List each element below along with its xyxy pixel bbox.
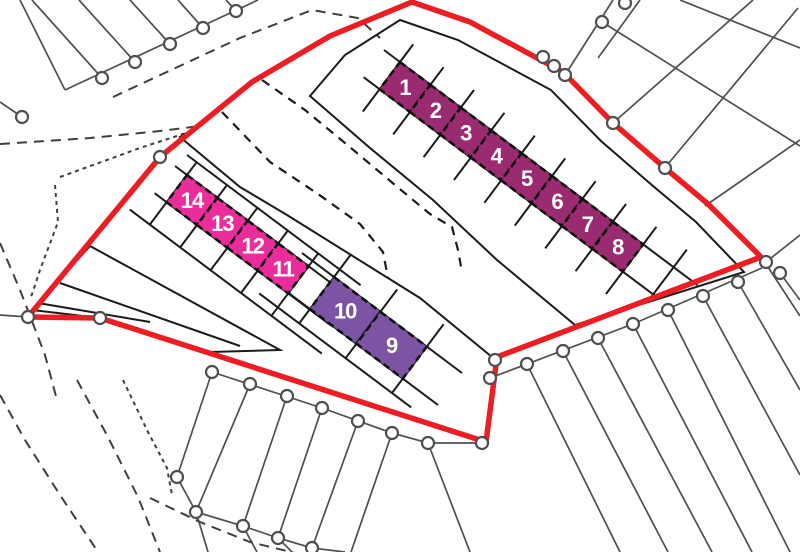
survey-node (272, 532, 284, 544)
survey-node (230, 5, 242, 17)
survey-node (489, 354, 501, 366)
plot-number: 4 (491, 143, 504, 168)
survey-node (662, 304, 674, 316)
plot-number: 12 (242, 234, 265, 259)
plot-number: 5 (521, 166, 533, 191)
plot-number: 3 (460, 121, 472, 146)
survey-node (244, 378, 256, 390)
survey-node (197, 22, 209, 34)
survey-node (659, 162, 671, 174)
survey-node (592, 332, 604, 344)
survey-node (697, 290, 709, 302)
survey-node (281, 390, 293, 402)
plots-1-8-strip: 1 2 3 4 5 6 7 8 (380, 62, 644, 272)
plot-number: 9 (386, 333, 398, 358)
survey-node (422, 437, 434, 449)
survey-node (306, 542, 318, 552)
survey-node (237, 520, 249, 532)
survey-node (386, 427, 398, 439)
road-area (180, 2, 761, 357)
survey-node (190, 506, 202, 518)
survey-node (596, 16, 608, 28)
survey-node (96, 72, 108, 84)
survey-node (559, 69, 571, 81)
survey-node (352, 415, 364, 427)
plot-number: 6 (551, 189, 563, 214)
plot-number: 13 (211, 211, 234, 236)
survey-node (316, 402, 328, 414)
survey-node (607, 117, 619, 129)
site-plan-map: 1 2 3 4 5 6 7 8 14 13 12 11 10 9 (0, 0, 800, 552)
plot-number: 2 (430, 98, 442, 123)
survey-node (22, 311, 34, 323)
survey-node (548, 60, 560, 72)
survey-node (129, 56, 141, 68)
survey-node (619, 0, 631, 9)
survey-node (521, 358, 533, 370)
survey-node (154, 151, 166, 163)
survey-node (627, 318, 639, 330)
plot-number: 1 (399, 75, 411, 100)
map-canvas: 1 2 3 4 5 6 7 8 14 13 12 11 10 9 (0, 0, 800, 552)
survey-node (94, 312, 106, 324)
plot-number: 10 (334, 298, 357, 323)
plot-number: 14 (181, 188, 205, 213)
survey-node (774, 267, 786, 279)
survey-node (206, 366, 218, 378)
survey-node (476, 437, 488, 449)
survey-node (171, 471, 183, 483)
survey-node (760, 256, 772, 268)
plot-number: 11 (273, 256, 295, 281)
survey-node (484, 372, 496, 384)
survey-node (16, 111, 28, 123)
survey-node (732, 276, 744, 288)
plot-number: 8 (612, 235, 624, 260)
survey-node (537, 51, 549, 63)
plot-number: 7 (582, 212, 594, 237)
survey-node (164, 38, 176, 50)
survey-node (557, 345, 569, 357)
